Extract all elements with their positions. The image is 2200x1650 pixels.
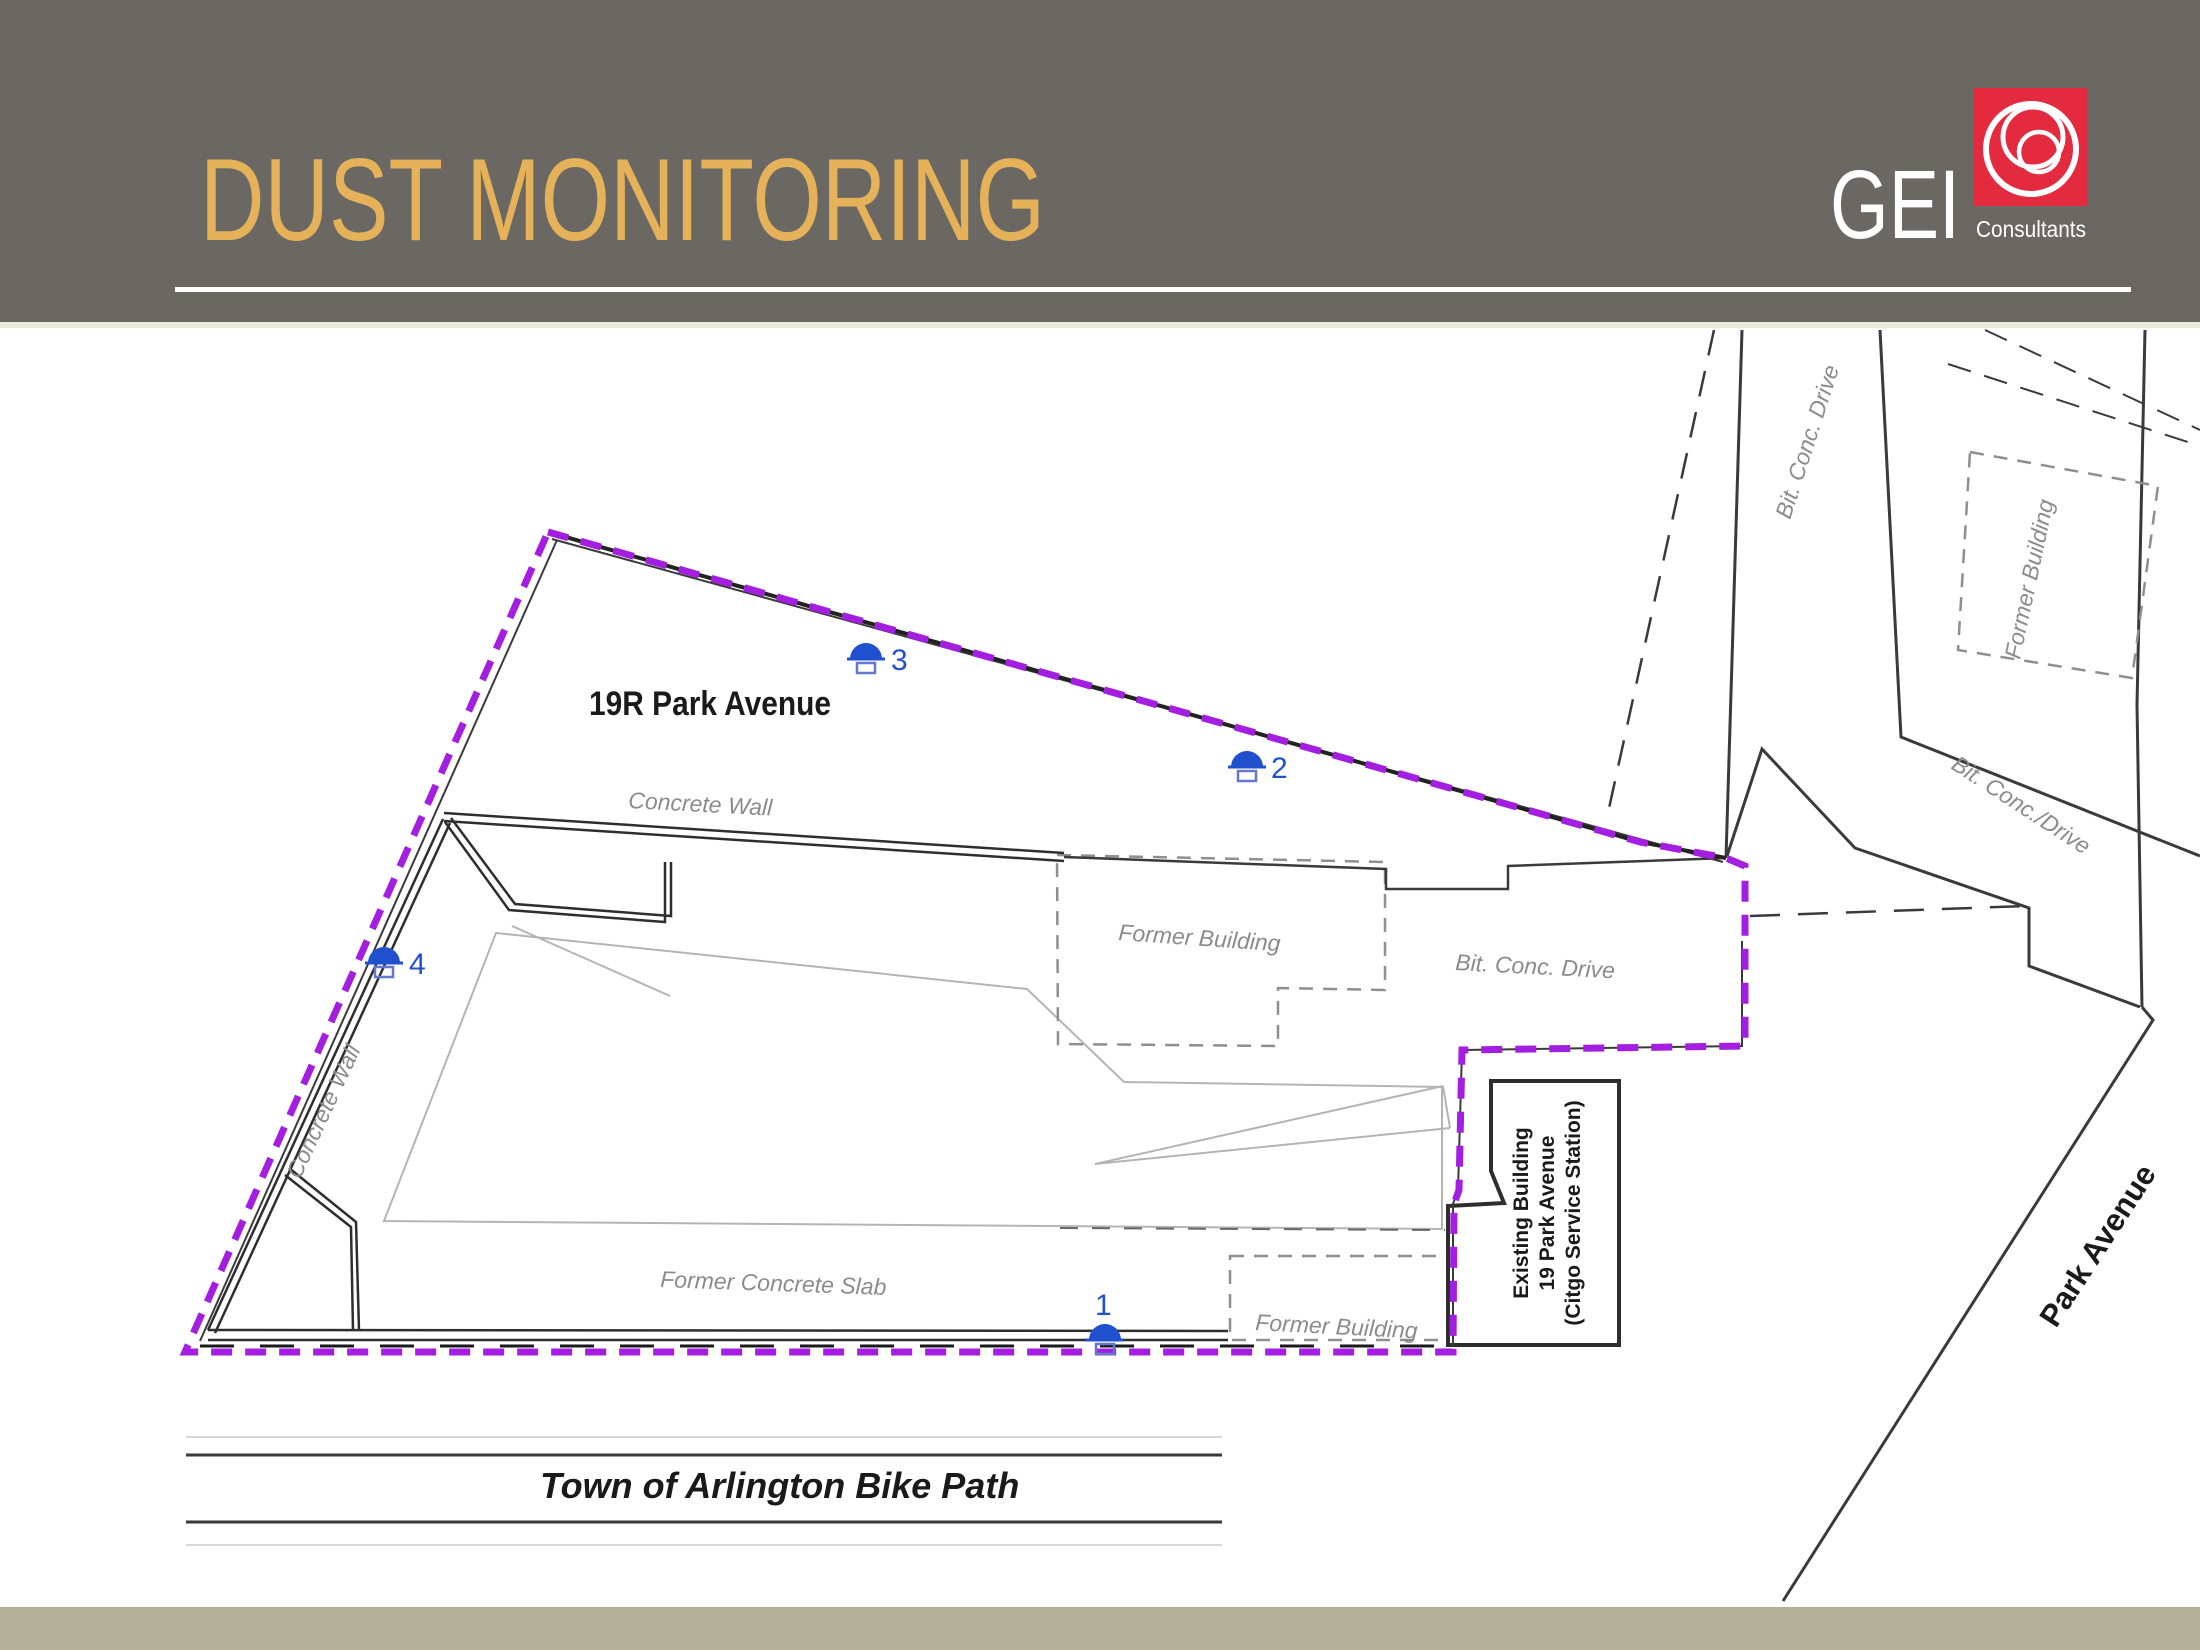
- svg-text:4: 4: [409, 948, 426, 981]
- svg-text:19 Park Avenue: 19 Park Avenue: [1536, 1136, 1559, 1291]
- svg-text:Existing Building: Existing Building: [1510, 1127, 1533, 1299]
- svg-text:1: 1: [1095, 1289, 1112, 1322]
- svg-text:19R Park Avenue: 19R Park Avenue: [589, 685, 831, 723]
- svg-text:3: 3: [891, 644, 908, 677]
- svg-text:(Citgo Service Station): (Citgo Service Station): [1562, 1100, 1585, 1325]
- svg-text:DUST MONITORING: DUST MONITORING: [200, 134, 1045, 265]
- svg-text:2: 2: [1271, 752, 1288, 785]
- svg-text:GEI: GEI: [1830, 150, 1960, 259]
- svg-text:Consultants: Consultants: [1976, 216, 2086, 242]
- svg-text:Town of Arlington Bike Path: Town of Arlington Bike Path: [540, 1465, 1019, 1506]
